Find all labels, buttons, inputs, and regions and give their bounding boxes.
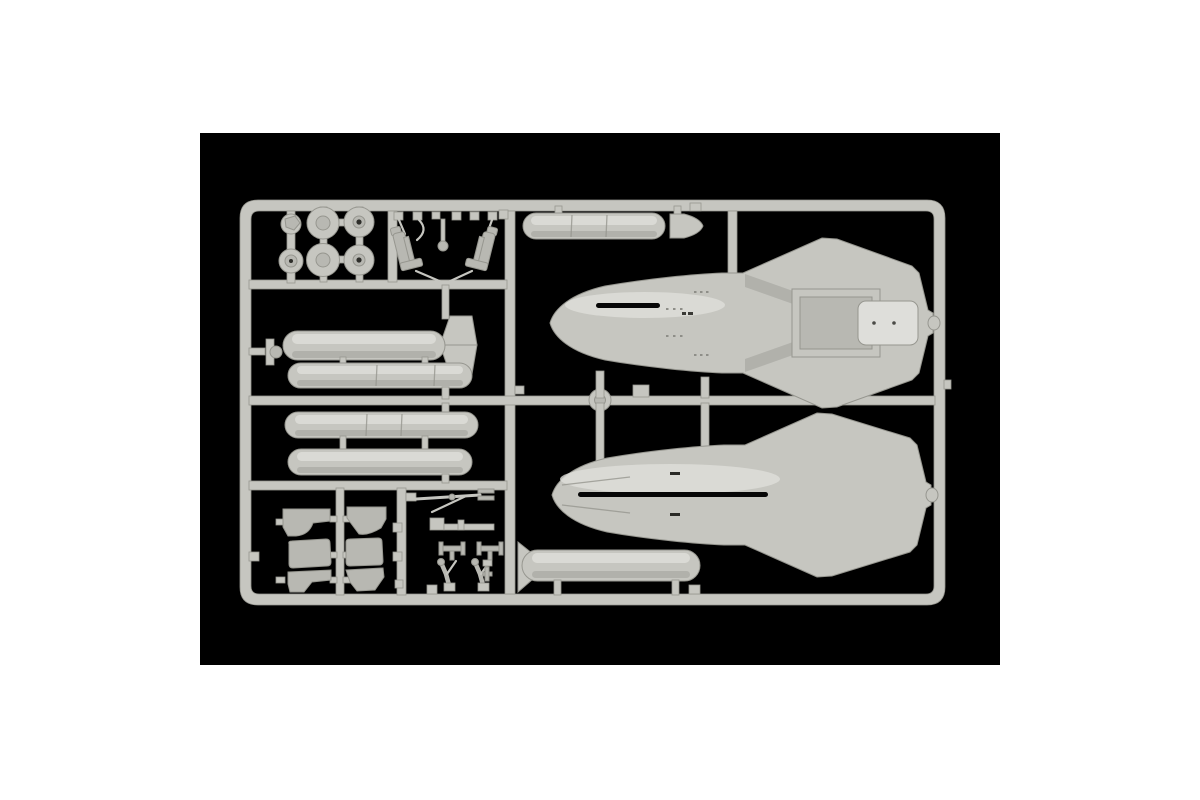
canopy-frame-1 [283,509,330,536]
gear-axle-1 [439,542,465,560]
wheels-cell [279,207,374,283]
main-wheel-4 [344,245,374,275]
tank-row3-upper [285,403,478,438]
small-parts-cell [393,489,503,594]
canopy-frames-cell [249,507,386,592]
tank-row3-lower [288,436,472,483]
wheel-hub-1 [281,214,301,234]
ejection-seat-right [465,223,498,271]
divider-canopy-smallparts [397,488,406,595]
main-wheel-3 [307,244,340,277]
bottom-finned-tank [518,542,700,595]
centre-join-slot [578,492,768,497]
main-wheel-2 [344,207,374,237]
gear-axle-2 [477,542,503,560]
seat-strap-part [441,219,445,243]
product-photo [200,133,1000,665]
canopy-frame-4 [346,538,383,566]
canopy-frame-5 [288,570,331,592]
seat-pull-handle [417,220,424,240]
tank-nose-cone [670,214,703,238]
left-rail-connector [249,339,282,365]
sprue-illustration [200,133,1000,665]
canopy-frame-3 [289,539,331,568]
canopy-frame-6 [346,568,384,591]
main-wheel-1 [307,207,339,239]
aft-panel [858,301,918,345]
wheel-hub-2 [279,249,303,273]
finned-tank-row2 [283,285,477,374]
landing-gear-leg-1 [438,559,457,592]
upper-fuselage-half [550,238,940,408]
stepped-bracket [430,518,494,530]
tail-gate [928,316,940,330]
divider-h3 [249,481,507,490]
tail-gate-lower [926,488,938,502]
segmented-tank-row2 [288,357,472,399]
cockpit-slot [596,303,660,308]
tab-above-midrail [633,385,649,397]
probe-strut [406,489,494,512]
ejection-seats-cell [390,212,498,283]
canopy-frame-2 [347,507,386,534]
